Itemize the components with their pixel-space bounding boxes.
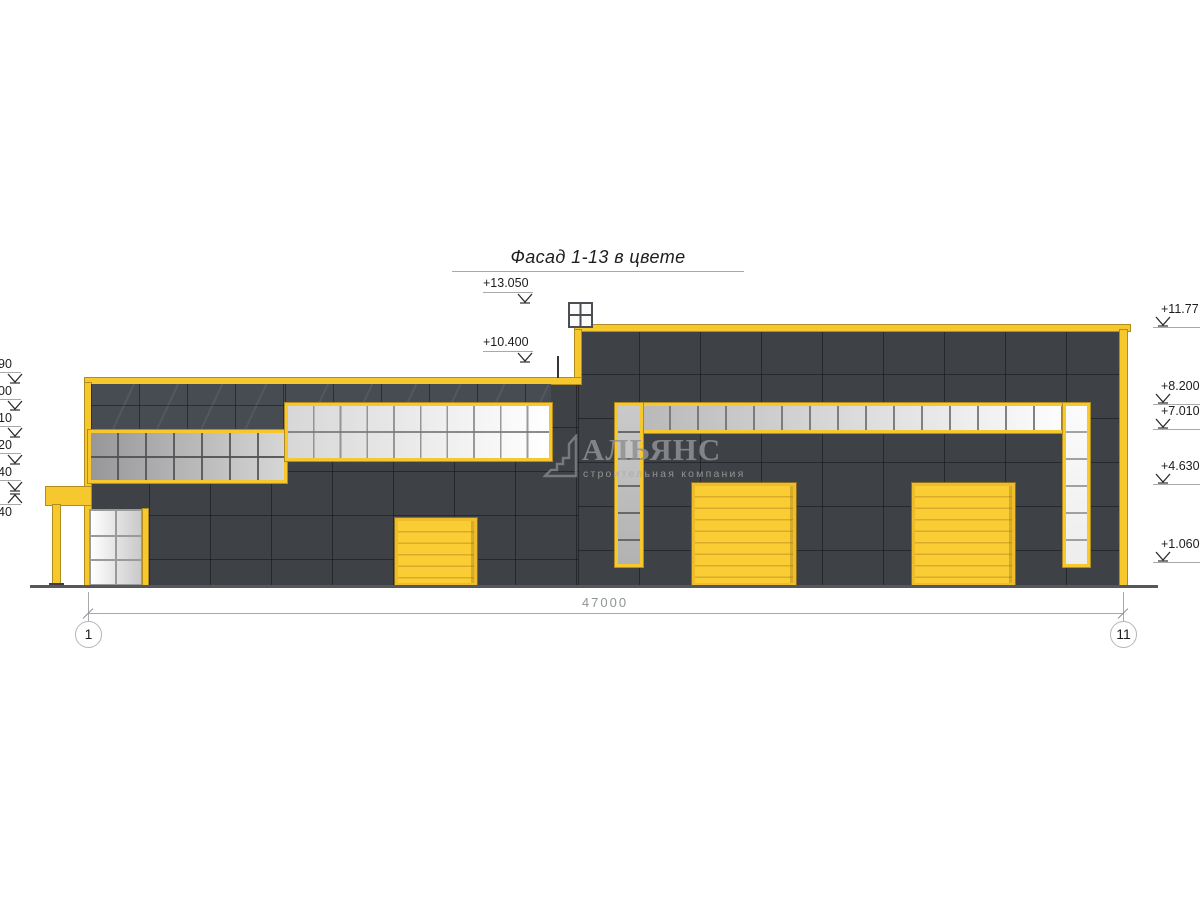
dark-glazing-band-right	[285, 384, 551, 403]
elevation-value: 20	[0, 438, 23, 452]
canopy-post	[53, 505, 60, 584]
elevation-value: +11.77	[1161, 302, 1200, 316]
watermark: АЛЬЯНС строительная компания	[543, 430, 803, 484]
watermark-company-name: АЛЬЯНС	[582, 432, 721, 468]
dimension-line	[88, 613, 1124, 614]
elevation-value: 10	[0, 411, 23, 425]
facade-drawing-canvas: Фасад 1-13 в цвете +13.050 +10.400 +11.7…	[0, 0, 1200, 900]
extension-line-right	[1123, 592, 1124, 621]
dimension-total-label: 47000	[540, 595, 670, 610]
entrance-glass-door	[89, 509, 143, 586]
elevation-value: +13.050	[483, 276, 533, 290]
elevation-mark-left-2: 00	[0, 384, 23, 411]
elevation-value: 90	[0, 357, 23, 371]
elevation-mark-left-5: 40	[0, 465, 23, 492]
company-logo-icon	[543, 434, 581, 478]
elevation-arrow-down-icon	[7, 454, 23, 465]
elevation-arrow-down-icon	[517, 352, 533, 363]
watermark-tagline: строительная компания	[583, 468, 745, 480]
garage-door-1	[395, 518, 477, 586]
elevation-arrow-down-icon	[7, 400, 23, 411]
elevation-value: +10.400	[483, 335, 533, 349]
extension-line-left	[88, 592, 89, 621]
drawing-title: Фасад 1-13 в цвете	[452, 247, 744, 272]
ribbon-window-horizontal	[640, 403, 1066, 433]
right-block-right-edge-trim	[1120, 330, 1127, 586]
elevation-value: +7.010	[1161, 404, 1200, 418]
right-block-left-edge-trim	[575, 330, 581, 380]
elevation-arrow-down-icon	[1155, 551, 1171, 562]
elevation-value: +4.630	[1161, 459, 1200, 473]
elevation-arrow-down-icon	[7, 481, 23, 492]
elevation-arrow-down-icon	[7, 427, 23, 438]
dark-glazing-band-left	[91, 384, 285, 430]
ribbon-window-white	[285, 403, 552, 461]
ground-line	[30, 585, 1158, 588]
axis-bubble-11: 11	[1110, 621, 1137, 648]
elevation-arrow-down-icon	[517, 293, 533, 304]
elevation-value: 00	[0, 384, 23, 398]
right-block-parapet-coping	[575, 325, 1130, 331]
garage-door-2	[692, 483, 796, 586]
elevation-mark-right-1: +11.77	[1153, 302, 1200, 328]
elevation-arrow-down-icon	[1155, 393, 1171, 404]
elevation-value: +1.060	[1161, 537, 1200, 551]
elevation-mark-right-3: +7.010	[1153, 404, 1200, 430]
ribbon-window-left-column	[615, 403, 643, 567]
ribbon-window-gray	[88, 430, 287, 483]
elevation-arrow-down-icon	[1155, 316, 1171, 327]
elevation-mark-13050: +13.050	[483, 276, 533, 304]
elevation-value: 40	[0, 505, 23, 519]
elevation-value: 40	[0, 465, 23, 479]
elevation-mark-left-3: 10	[0, 411, 23, 438]
elevation-mark-left-1: 90	[0, 357, 23, 384]
elevation-arrow-up-icon	[7, 493, 23, 504]
garage-door-3	[912, 483, 1015, 586]
elevation-value: +8.200	[1161, 379, 1200, 393]
roof-ladder-frame	[568, 302, 593, 328]
elevation-mark-right-4: +4.630	[1153, 459, 1200, 485]
elevation-arrow-down-icon	[7, 373, 23, 384]
axis-bubble-1: 1	[75, 621, 102, 648]
ribbon-window-right-column	[1063, 403, 1090, 567]
roof-pole	[557, 356, 559, 378]
elevation-mark-left-4: 20	[0, 438, 23, 465]
elevation-mark-10400: +10.400	[483, 335, 533, 363]
elevation-mark-right-2: +8.200	[1153, 379, 1200, 405]
elevation-mark-right-5: +1.060	[1153, 537, 1200, 563]
entrance-canopy	[46, 487, 91, 505]
elevation-mark-left-6: 40	[0, 493, 23, 519]
elevation-arrow-down-icon	[1155, 473, 1171, 484]
entrance-door-jamb	[143, 509, 148, 586]
elevation-arrow-down-icon	[1155, 418, 1171, 429]
